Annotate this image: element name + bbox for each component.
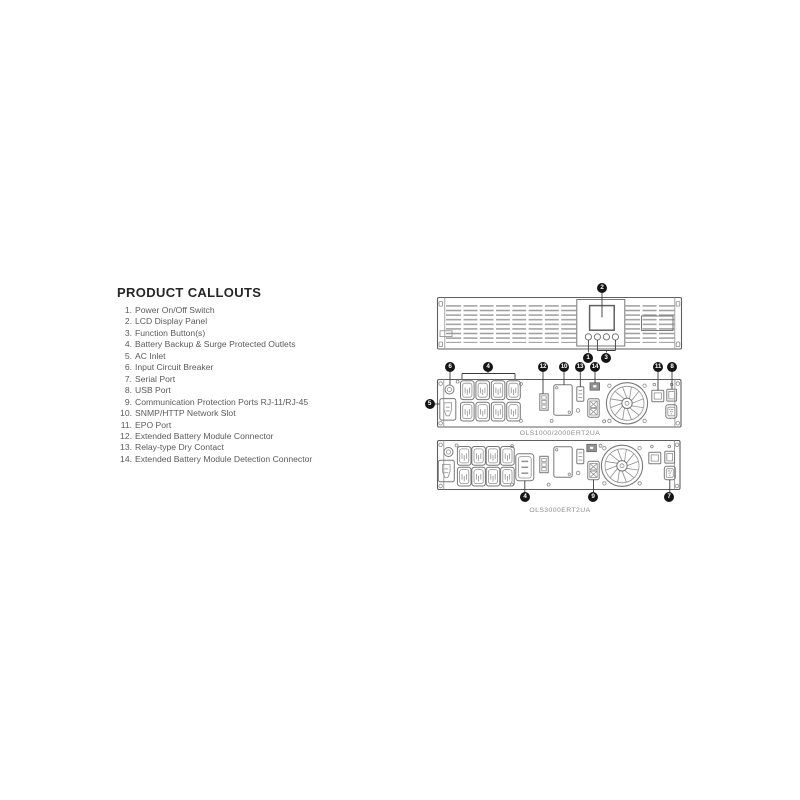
callout-item: 7.Serial Port xyxy=(117,374,417,385)
callout-badge-circuit-breaker: 6 xyxy=(445,362,455,372)
callout-badge-dry-contact: 13 xyxy=(575,362,585,372)
callout-item: 5.AC Inlet xyxy=(117,351,417,362)
callout-item: 9.Communication Protection Ports RJ-11/R… xyxy=(117,397,417,408)
callout-badge-epo-port: 11 xyxy=(653,362,663,372)
ventilation-grille-left xyxy=(446,302,576,343)
callout-badge-function-buttons: 3 xyxy=(601,353,611,363)
callout-item: 1.Power On/Off Switch xyxy=(117,305,417,316)
callout-item: 11.EPO Port xyxy=(117,420,417,431)
callout-badge-outlets: 4 xyxy=(483,362,493,372)
callout-badge-snmp-slot: 10 xyxy=(559,362,569,372)
callout-badge-comm-ports: 9 xyxy=(588,492,598,502)
callout-item: 14.Extended Battery Module Detection Con… xyxy=(117,454,417,465)
front-panel-diagram xyxy=(438,293,682,353)
manual-page: { "callouts_section": { "title": "PRODUC… xyxy=(0,0,800,800)
model-label-ols1000-2000: OLS1000/2000ERT2UA xyxy=(438,430,682,437)
callout-item: 12.Extended Battery Module Connector xyxy=(117,431,417,442)
callout-badge-serial-port: 7 xyxy=(664,492,674,502)
rear-panel-ols3000-diagram xyxy=(438,441,681,493)
callout-badge-ebm-detection: 14 xyxy=(590,362,600,372)
ebm-detection-connector xyxy=(587,444,597,451)
ups-diagrams xyxy=(420,280,690,520)
callout-badge-power-switch: 1 xyxy=(583,353,593,363)
model-label-ols3000: OLS3000ERT2UA xyxy=(438,507,682,514)
rear-panel-ols1000-2000-diagram xyxy=(435,372,682,427)
callout-badge-c19-outlet: 4 xyxy=(520,492,530,502)
ebm-detection-connector xyxy=(590,383,600,390)
callout-badge-usb-port: 8 xyxy=(667,362,677,372)
callout-item: 13.Relay-type Dry Contact xyxy=(117,442,417,453)
callout-badge-lcd-display: 2 xyxy=(597,283,607,293)
callout-item: 4.Battery Backup & Surge Protected Outle… xyxy=(117,339,417,350)
callout-item: 8.USB Port xyxy=(117,385,417,396)
callout-badge-ac-inlet: 5 xyxy=(425,399,435,409)
callout-item: 3.Function Button(s) xyxy=(117,328,417,339)
callout-item: 10.SNMP/HTTP Network Slot xyxy=(117,408,417,419)
callout-badge-ebm-connector: 12 xyxy=(538,362,548,372)
callout-item: 6.Input Circuit Breaker xyxy=(117,362,417,373)
ventilation-grille-right xyxy=(625,302,675,343)
callout-item: 2.LCD Display Panel xyxy=(117,316,417,327)
product-callouts-section: PRODUCT CALLOUTS 1.Power On/Off Switch 2… xyxy=(117,285,417,465)
callouts-list: 1.Power On/Off Switch 2.LCD Display Pane… xyxy=(117,305,417,465)
section-title: PRODUCT CALLOUTS xyxy=(117,285,417,300)
